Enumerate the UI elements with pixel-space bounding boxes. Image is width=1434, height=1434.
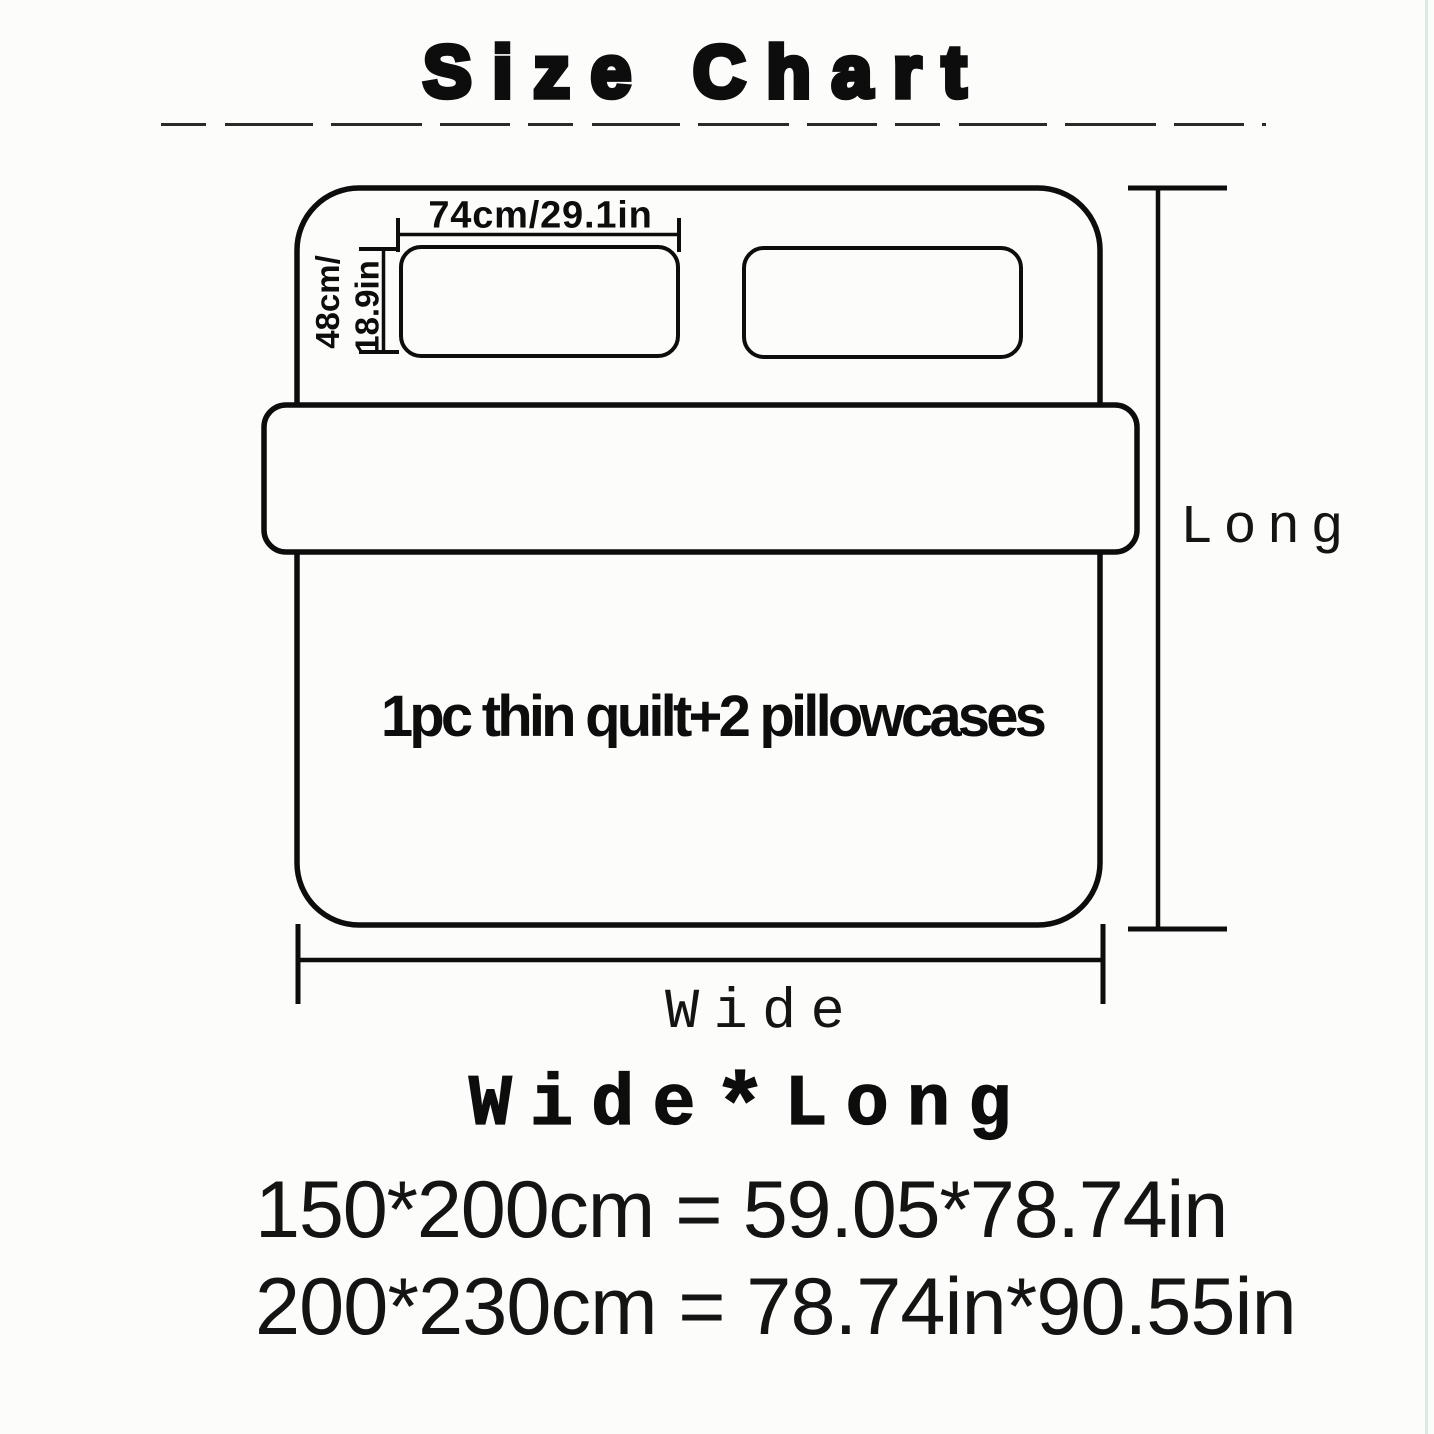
svg-text:Long: Long: [1180, 496, 1354, 559]
svg-text:Size Chart: Size Chart: [423, 32, 987, 113]
svg-text:18.9in: 18.9in: [349, 260, 386, 354]
svg-text:1pc thin quilt+2 pillowcases: 1pc thin quilt+2 pillowcases: [381, 684, 1045, 749]
svg-text:Wide: Wide: [665, 981, 859, 1045]
svg-text:150*200cm = 59.05*78.74in: 150*200cm = 59.05*78.74in: [255, 1165, 1227, 1255]
svg-text:74cm/29.1in: 74cm/29.1in: [428, 195, 652, 237]
svg-text:200*230cm = 78.74in*90.55in: 200*230cm = 78.74in*90.55in: [255, 1262, 1296, 1352]
svg-text:48cm/: 48cm/: [309, 255, 346, 349]
